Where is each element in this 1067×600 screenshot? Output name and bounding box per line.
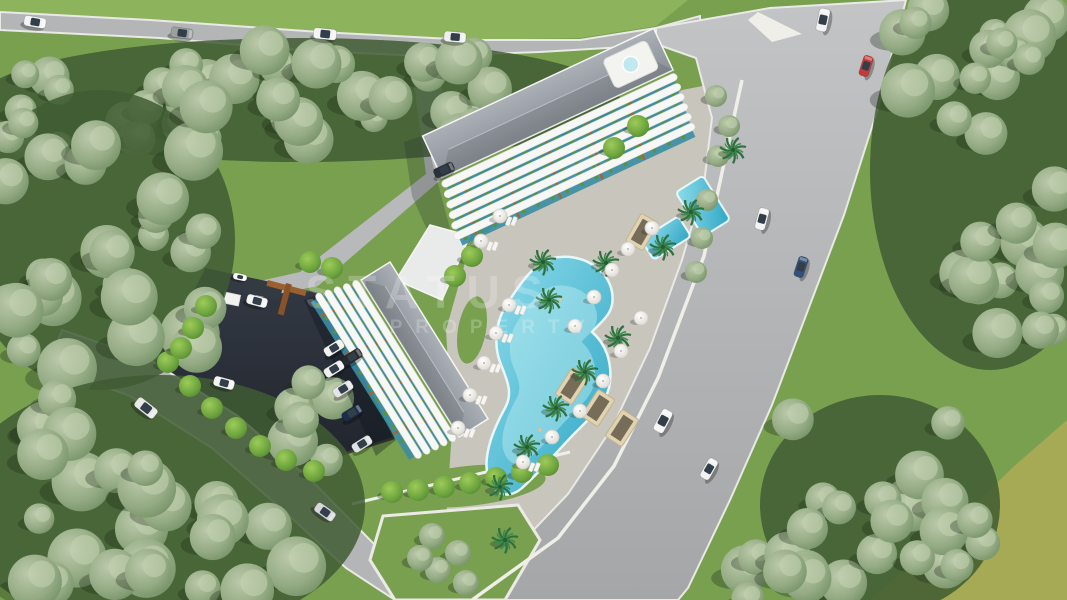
tree-highlight [60,345,90,375]
tree-highlight [19,111,34,126]
tree-highlight [463,573,476,586]
tree-highlight [28,561,55,588]
tree-highlight [913,456,937,480]
parasol-pole [457,427,459,429]
accent-tree [179,375,201,397]
tree-highlight [435,560,448,573]
tree-highlight [971,66,987,82]
accent-tree [275,449,297,471]
tree-highlight [310,44,335,69]
tree-highlight [944,410,961,427]
tree-highlight [970,506,988,524]
tree-highlight [262,508,286,532]
tree-highlight [0,163,23,186]
palm-crown [689,210,693,214]
tree-highlight [289,543,319,573]
architectural-render: STATUS PROPERTY [0,0,1067,600]
tree-highlight [704,191,715,202]
palm-crown [583,370,587,374]
car-glass [320,30,330,39]
tree-highlight [981,117,1002,138]
tree-highlight [953,553,969,569]
tree-highlight [52,384,71,403]
parasol-pole [480,240,482,242]
tree-highlight [156,178,182,204]
accent-tree [461,245,483,267]
tree-highlight [913,544,931,562]
palm-crown [541,260,545,264]
tree-highlight [967,260,991,284]
tree-highlight [713,87,724,98]
tree-highlight [19,337,36,354]
palm-crown [554,406,558,410]
tree-highlight [693,263,704,274]
tree-highlight [417,548,430,561]
swimmer [558,298,561,301]
tree-highlight [835,494,852,511]
parasol-pole [483,362,485,364]
tree-highlight [385,81,407,103]
parasol-pole [551,436,553,438]
tree-highlight [887,504,909,526]
tree-highlight [991,313,1016,338]
tree-highlight [42,139,65,162]
tree-highlight [9,289,36,316]
accent-tree [627,115,649,137]
tree-highlight [429,526,442,539]
parasol-pole [651,227,653,229]
tree-highlight [779,554,801,576]
accent-tree [182,317,204,339]
tree-highlight [207,519,230,542]
palm-crown [525,445,529,449]
car-glass [450,33,460,41]
tree-highlight [901,69,928,96]
accent-tree [459,472,481,494]
parasol-pole [602,380,604,382]
tree-highlight [1011,207,1032,228]
parasol-pole [620,350,622,352]
tree-highlight [950,105,968,123]
tree-highlight [90,126,115,151]
parasol-pole [593,296,595,298]
swimmer [538,428,541,431]
accent-tree [603,137,625,159]
tree-highlight [1025,47,1041,63]
tree-highlight [453,42,477,66]
tree-highlight [998,31,1014,47]
parasol-pole [611,269,613,271]
render-canvas: STATUS PROPERTY [0,0,1067,600]
parasol-pole [579,410,581,412]
tree-highlight [788,403,809,424]
tree-highlight [911,10,927,26]
tree-highlight [323,447,339,463]
tree-highlight [455,543,468,556]
tree-highlight [45,263,66,284]
tree-highlight [273,82,295,104]
palm-crown [661,245,665,249]
parasol-pole [627,248,629,250]
parasol-pole [640,317,642,319]
accent-tree [170,337,192,359]
tree-highlight [122,275,150,303]
palm-crown [616,336,620,340]
accent-tree [249,435,271,457]
accent-tree [407,479,429,501]
tree-highlight [143,554,166,577]
accent-tree [201,397,223,419]
tree-highlight [484,72,506,94]
accent-tree [303,460,325,482]
tree-highlight [107,235,130,258]
tree-highlight [726,117,737,128]
tree-highlight [141,454,159,472]
accent-tree [381,481,403,503]
parasol-pole [499,215,501,217]
tree-highlight [200,86,226,112]
accent-tree [225,417,247,439]
watermark-line1: STATUS [305,266,554,318]
parasol-pole [469,394,471,396]
tree-highlight [22,63,36,77]
watermark-line2: PROPERTY [390,317,599,338]
tree-highlight [198,574,216,592]
tree-highlight [199,217,217,235]
tree-highlight [1036,316,1055,335]
tree-highlight [939,483,963,507]
palm-crown [503,538,507,542]
tree-highlight [304,369,321,386]
tree-highlight [35,507,50,522]
tree-highlight [36,434,62,460]
tree-highlight [1042,282,1059,299]
tree-highlight [63,413,90,440]
accent-tree [195,295,217,317]
palm-crown [498,485,502,489]
parasol-pole [522,461,524,463]
tree-highlight [258,31,283,56]
tree-highlight [802,513,823,534]
palm-crown [731,148,735,152]
car-glass [30,18,40,27]
tree-highlight [296,406,314,424]
tree-highlight [241,569,268,596]
tree-highlight [931,59,954,82]
tree-highlight [1023,15,1050,42]
tree-highlight [55,78,70,93]
car-glass [177,29,187,38]
accent-tree [433,476,455,498]
tree-highlight [699,229,710,240]
